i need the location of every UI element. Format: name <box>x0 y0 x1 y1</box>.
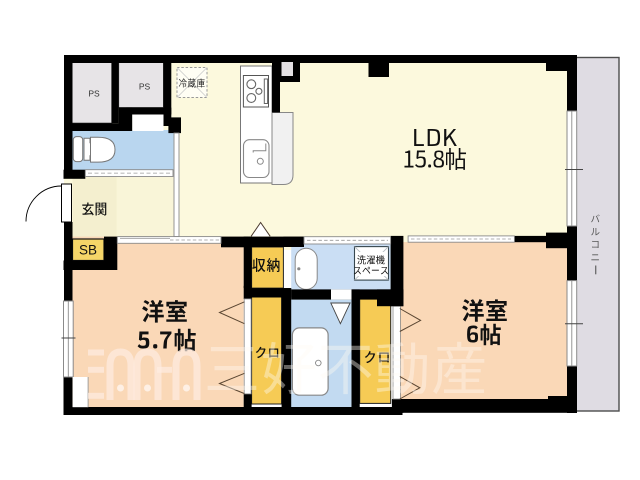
svg-text:PS: PS <box>139 82 151 92</box>
svg-text:SB: SB <box>79 243 97 258</box>
svg-text:PS: PS <box>88 89 100 99</box>
